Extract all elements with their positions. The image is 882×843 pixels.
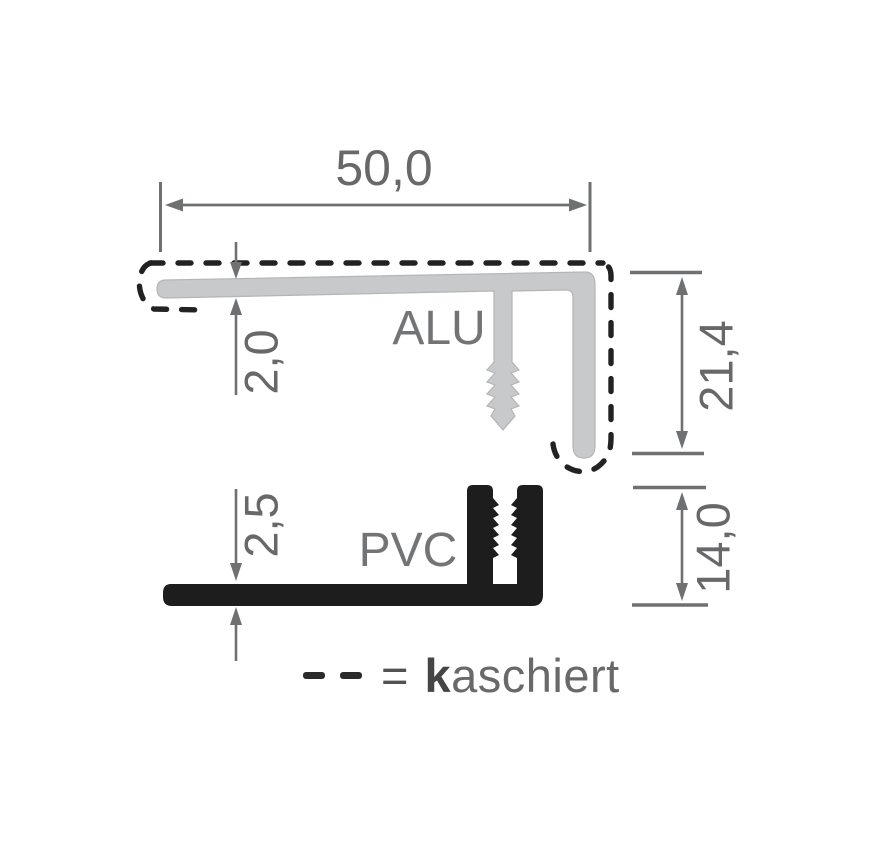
- drawing-layer: [0, 0, 882, 843]
- dimension-top-width: 50,0: [335, 143, 432, 193]
- alu-profile-shape: [157, 272, 595, 458]
- alu-material-label: ALU: [392, 305, 485, 353]
- legend-term: kaschiert: [424, 652, 619, 699]
- pvc-material-label: PVC: [359, 527, 458, 575]
- legend-dash-icon: [303, 672, 325, 679]
- dimension-pvc-leg-height: 14,0: [690, 502, 737, 593]
- dim-50-arrow-right: [569, 199, 587, 212]
- dim-214-arrow-up: [676, 277, 688, 295]
- dim-25-arrow-down: [230, 563, 242, 581]
- dimension-alu-thickness: 2,0: [238, 329, 285, 394]
- dimension-alu-leg-height: 21,4: [693, 320, 740, 411]
- legend-term-rest: aschiert: [451, 649, 620, 702]
- legend: = kaschiert: [303, 649, 620, 701]
- legend-term-initial: k: [424, 649, 451, 702]
- legend-dash-icon: [340, 672, 362, 679]
- dim-20-arrow-down: [230, 262, 242, 279]
- dim-214-arrow-down: [676, 431, 688, 449]
- pvc-profile-shape: [163, 485, 543, 606]
- dim-25-arrow-up: [230, 607, 242, 625]
- legend-equals: =: [381, 652, 408, 699]
- dim-50-arrow-left: [165, 199, 183, 212]
- dimension-pvc-thickness: 2,5: [238, 492, 285, 557]
- profile-technical-drawing: 50,0 2,0 21,4 2,5 14,0 ALU PVC = kaschie…: [0, 0, 882, 843]
- dim-20-arrow-up: [230, 298, 242, 315]
